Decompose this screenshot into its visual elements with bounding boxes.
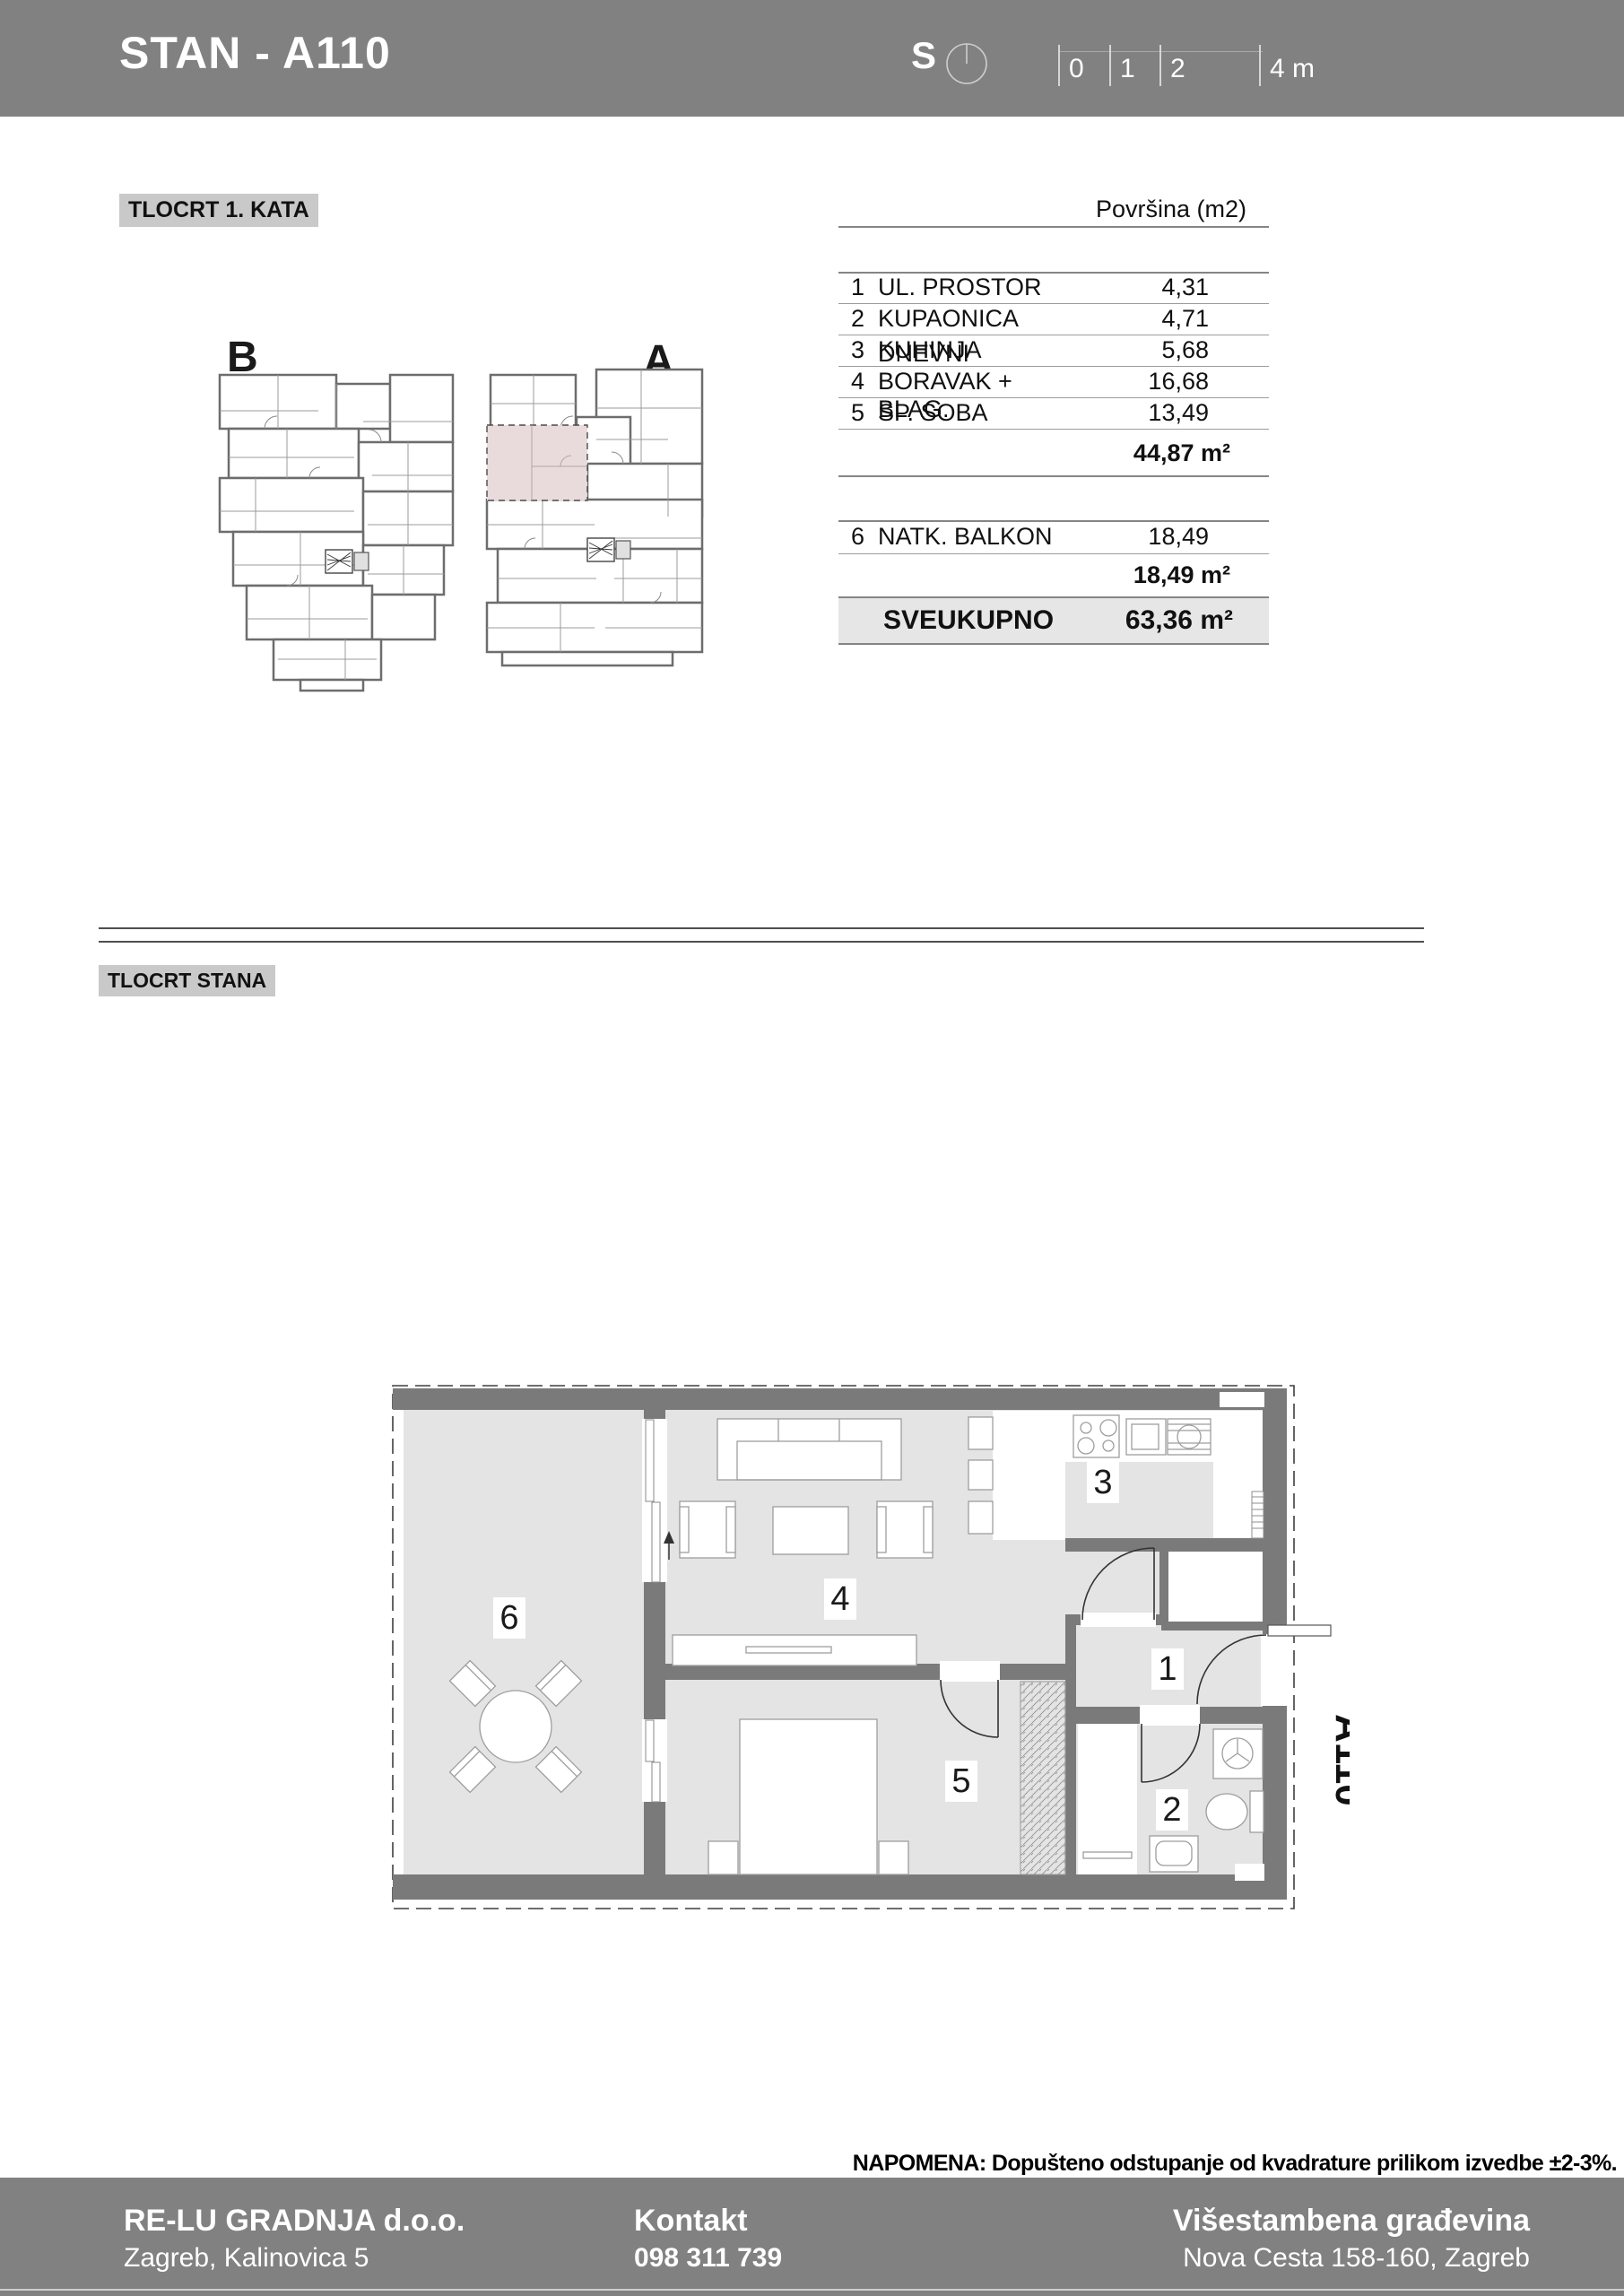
table-row: 2 KUPAONICA 4,71 (838, 303, 1269, 335)
room-name-cell: KUPAONICA (878, 305, 1074, 333)
round-table (480, 1691, 551, 1762)
floorplan-sheet: { "header": { "title": "STAN - A110", "n… (0, 0, 1624, 2296)
table-line (838, 475, 1269, 477)
table-row: 5 SP. SOBA 13,49 (838, 397, 1269, 429)
scale-tick-label: 2 (1170, 54, 1185, 84)
room-number-cell: 1 (838, 274, 878, 301)
table-line (838, 553, 1269, 554)
room-area-cell: 18,49 (1074, 523, 1269, 551)
vent-hatch (1252, 1492, 1264, 1538)
section-divider (99, 927, 1424, 929)
highlighted-unit-a110 (487, 425, 587, 500)
footer-company-block: RE-LU GRADNJA d.o.o. Zagreb, Kalinovica … (124, 2201, 465, 2276)
footer-edge-line (0, 2289, 1624, 2291)
project-address: Nova Cesta 158-160, Zagreb (1173, 2240, 1530, 2276)
toilet (1206, 1791, 1264, 1832)
kitchen-peninsula (993, 1462, 1065, 1540)
storage-closet (1168, 1550, 1266, 1622)
room-label-1: 1 (1158, 1650, 1177, 1688)
scale-tick (1109, 45, 1111, 86)
north-label: S (911, 34, 936, 77)
room-area-cell: 13,49 (1074, 399, 1269, 427)
room-number-cell: 6 (838, 523, 878, 551)
room-label-2: 2 (1162, 1791, 1181, 1829)
stove (1073, 1415, 1119, 1457)
washing-machine (1213, 1729, 1263, 1779)
room-area-cell: 4,71 (1074, 305, 1269, 333)
sofa (717, 1419, 901, 1480)
section-divider (99, 941, 1424, 943)
tolerance-note: NAPOMENA: Dopušteno odstupanje od kvadra… (630, 2151, 1617, 2177)
company-address: Zagreb, Kalinovica 5 (124, 2240, 465, 2276)
room-label-5: 5 (951, 1762, 970, 1800)
table-column-header: Površina (m2) (1096, 196, 1246, 223)
apartment-floor-plan: 6 4 3 1 5 2 A110 (386, 1377, 1350, 1924)
table-line (838, 429, 1269, 430)
armchair (680, 1501, 735, 1558)
area-table: Površina (m2) 1 UL. PROSTOR 4,31 2 KUPAO… (838, 188, 1269, 655)
balcony-floor (404, 1410, 644, 1874)
room-number-cell: 2 (838, 305, 878, 333)
scale-tick-label: 0 (1069, 54, 1084, 84)
section-label-floor-plan: TLOCRT 1. KATA (119, 194, 318, 227)
room-label-3: 3 (1093, 1464, 1112, 1501)
scale-tick (1058, 45, 1060, 86)
room-name-cell: UL. PROSTOR (878, 274, 1074, 301)
room-area-cell: 16,68 (1074, 368, 1269, 396)
coffee-table (773, 1507, 848, 1554)
footer-project-block: Višestambena građevina Nova Cesta 158-16… (1173, 2201, 1530, 2276)
table-line (838, 226, 1269, 228)
contact-label: Kontakt (634, 2201, 782, 2240)
project-name: Višestambena građevina (1173, 2201, 1530, 2240)
building-a-stair-core (587, 538, 630, 561)
table-row: 6 NATK. BALKON 18,49 (838, 521, 1269, 552)
footer-contact-block: Kontakt 098 311 739 (634, 2201, 782, 2276)
wardrobe (1020, 1682, 1065, 1874)
room-name-cell: NATK. BALKON (878, 523, 1074, 551)
scale-tick (1159, 45, 1161, 86)
table-line (838, 643, 1269, 645)
bar-stools (968, 1417, 993, 1534)
balcony-subtotal: 18,49 m² (1133, 561, 1230, 589)
entrance-door-leaf (1268, 1625, 1331, 1636)
kitchen-sink (1126, 1419, 1211, 1455)
armchair (877, 1501, 933, 1558)
total-row: SVEUKUPNO 63,36 m² (838, 598, 1269, 643)
section-label-apartment-plan: TLOCRT STANA (99, 965, 275, 996)
scale-tick (1259, 45, 1261, 86)
room-area-cell: 4,31 (1074, 274, 1269, 301)
room-number-cell: 5 (838, 399, 878, 427)
company-name: RE-LU GRADNJA d.o.o. (124, 2201, 465, 2240)
nightstand (708, 1841, 738, 1874)
room-number-cell: 4 (838, 368, 878, 396)
table-line (838, 596, 1269, 598)
bathroom-sink (1150, 1836, 1198, 1872)
contact-phone: 098 311 739 (634, 2240, 782, 2276)
footer-bar: RE-LU GRADNJA d.o.o. Zagreb, Kalinovica … (0, 2178, 1624, 2296)
building-b-stair-core (326, 550, 369, 573)
scale-tick-label: 4 m (1270, 54, 1315, 84)
table-row: 4 DNEVNI BORAVAK + BLAG. 16,68 (838, 366, 1269, 397)
page-title: STAN - A110 (119, 27, 391, 79)
building-a-plan: A (487, 337, 702, 665)
room-label-6: 6 (499, 1599, 518, 1637)
room-area-cell: 5,68 (1074, 336, 1269, 364)
interior-subtotal: 44,87 m² (1133, 439, 1230, 467)
room-label-4: 4 (830, 1580, 849, 1618)
table-row: 1 UL. PROSTOR 4,31 (838, 272, 1269, 303)
total-value: 63,36 m² (1125, 605, 1269, 636)
entrance-opening (1261, 1634, 1289, 1706)
scale-tick-label: 1 (1120, 54, 1135, 84)
building-overview-plans: B (202, 332, 749, 717)
total-label: SVEUKUPNO (838, 605, 1125, 636)
room-number-cell: 3 (838, 336, 878, 364)
room-name-cell: SP. SOBA (878, 399, 1074, 427)
north-compass-icon (943, 39, 990, 86)
building-b-plan: B (220, 334, 453, 691)
unit-label: A110 (1327, 1714, 1350, 1806)
sideboard (673, 1635, 916, 1665)
header-bar: STAN - A110 S 0 1 2 4 m (0, 0, 1624, 117)
nightstand (879, 1841, 908, 1874)
